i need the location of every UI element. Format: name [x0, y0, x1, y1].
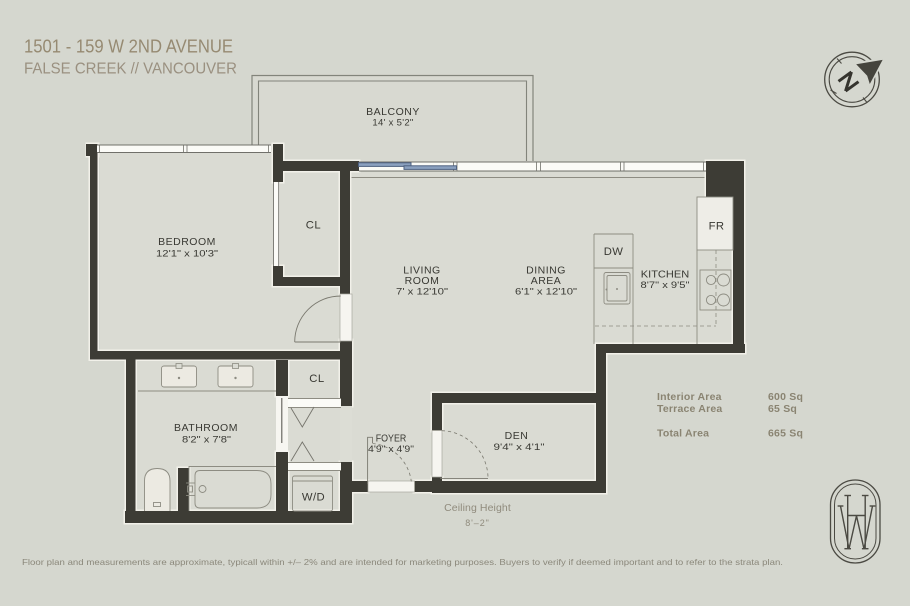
- svg-text:1501 - 159 W 2ND AVENUE: 1501 - 159 W 2ND AVENUE: [24, 37, 233, 57]
- svg-text:DW: DW: [604, 246, 624, 258]
- svg-text:665 Sq: 665 Sq: [768, 428, 803, 440]
- svg-text:FALSE CREEK // VANCOUVER: FALSE CREEK // VANCOUVER: [24, 61, 237, 78]
- svg-text:BEDROOM: BEDROOM: [158, 236, 216, 248]
- svg-text:W/D: W/D: [302, 492, 325, 504]
- svg-text:CL: CL: [309, 373, 324, 385]
- svg-text:CL: CL: [306, 220, 321, 232]
- svg-text:4'9" x 4'9": 4'9" x 4'9": [368, 444, 414, 455]
- svg-text:BALCONY: BALCONY: [366, 106, 420, 118]
- svg-text:DEN: DEN: [505, 430, 529, 442]
- svg-text:AREA: AREA: [531, 275, 562, 287]
- svg-text:Total Area: Total Area: [657, 428, 709, 440]
- svg-text:8'–2": 8'–2": [465, 518, 489, 528]
- svg-text:FOYER: FOYER: [376, 433, 407, 445]
- svg-text:7' x 12'10": 7' x 12'10": [396, 287, 448, 298]
- svg-text:Terrace Area: Terrace Area: [657, 403, 722, 415]
- svg-text:Interior Area: Interior Area: [657, 391, 722, 403]
- svg-text:8'2" x 7'8": 8'2" x 7'8": [182, 435, 231, 446]
- svg-text:65 Sq: 65 Sq: [768, 403, 797, 415]
- svg-text:9'4" x 4'1": 9'4" x 4'1": [494, 442, 545, 453]
- svg-text:Floor plan and measurements ar: Floor plan and measurements are approxim…: [22, 557, 783, 567]
- svg-text:14' x 5'2": 14' x 5'2": [372, 118, 413, 129]
- svg-text:12'1" x 10'3": 12'1" x 10'3": [156, 249, 218, 260]
- svg-text:ROOM: ROOM: [405, 275, 440, 287]
- svg-text:600 Sq: 600 Sq: [768, 391, 803, 403]
- svg-text:8'7" x 9'5": 8'7" x 9'5": [641, 280, 690, 291]
- svg-text:Ceiling Height: Ceiling Height: [444, 502, 511, 514]
- svg-text:KITCHEN: KITCHEN: [641, 269, 690, 281]
- svg-text:BATHROOM: BATHROOM: [174, 422, 238, 434]
- svg-text:FR: FR: [709, 221, 725, 233]
- svg-text:6'1" x 12'10": 6'1" x 12'10": [515, 287, 577, 298]
